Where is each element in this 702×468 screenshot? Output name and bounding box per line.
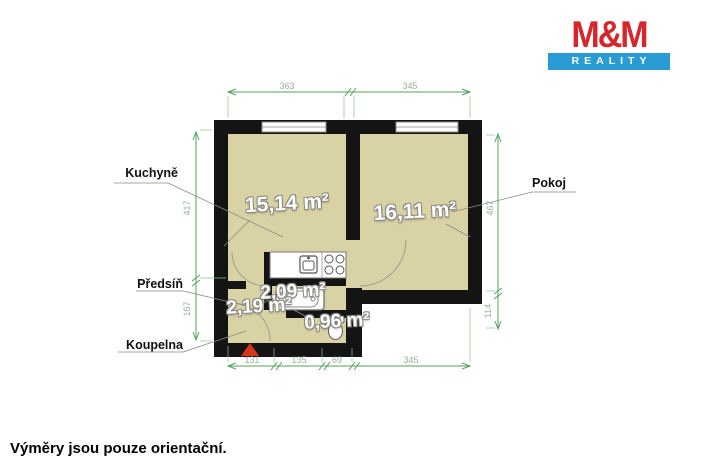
pokoj-door-opening [346,240,360,288]
dim-left-upper: 417 [182,200,192,215]
label-predsin: Předsíň [113,277,183,291]
floor-plan-drawing: 363 345 131 135 69 345 417 167 467 114 [0,0,702,468]
dim-bottom-2: 135 [291,355,306,365]
area-kuchyne: 15,14 m² [244,190,329,218]
wall-stub-left [214,281,246,289]
label-kuchyne: Kuchyně [108,166,178,180]
label-pokoj: Pokoj [532,176,566,190]
dim-right-upper: 467 [485,200,495,215]
kitchen-counter [270,252,346,278]
dim-left-lower: 167 [182,301,192,316]
floorplan-page: M&M REALITY [0,0,702,468]
window-pokoj [396,122,458,132]
wall-left [214,120,228,357]
area-koupelna: 2,19 m² [226,294,293,319]
dim-bottom-4: 345 [403,355,418,365]
dim-top-left: 363 [279,81,294,91]
disclaimer-text: Výměry jsou pouze orientační. [10,440,227,457]
dim-right-lower: 114 [483,304,493,318]
window-kitchen [262,122,326,132]
dim-bottom-3: 69 [332,355,342,365]
wall-pokoj-bottom [346,290,482,304]
area-pokoj: 16,11 m² [373,198,457,226]
label-koupelna: Koupelna [113,338,183,352]
wall-right [468,120,482,304]
dim-top-right: 345 [402,81,417,91]
dim-bottom-1: 131 [244,355,259,365]
wall-divider-upper [346,134,360,240]
area-wc: 0,96 m² [304,309,371,334]
